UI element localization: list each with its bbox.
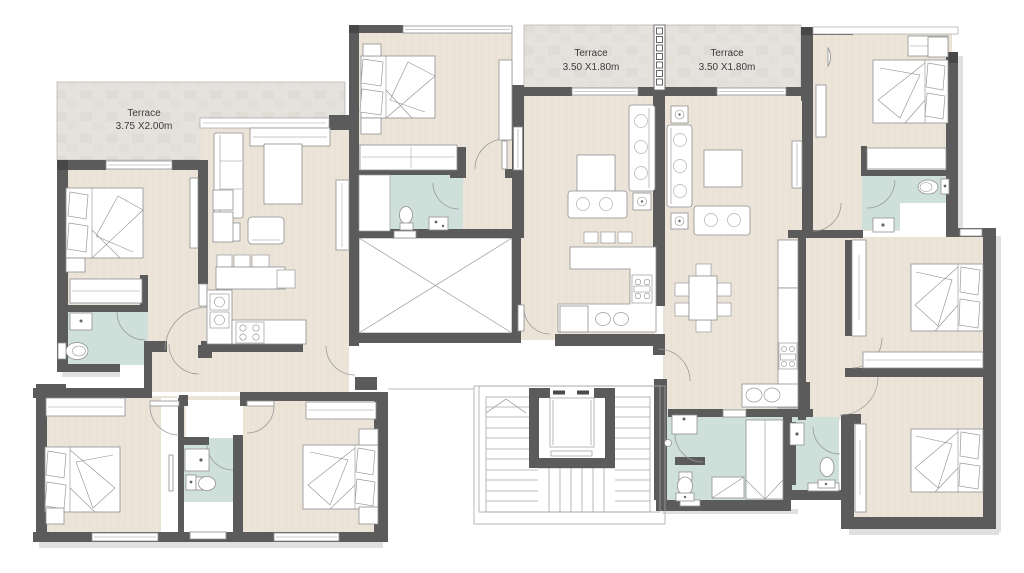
svg-text:3.50 X1.80m: 3.50 X1.80m bbox=[699, 62, 756, 73]
svg-text:3.50 X1.80m: 3.50 X1.80m bbox=[563, 62, 620, 73]
svg-text:Terrace: Terrace bbox=[574, 48, 608, 59]
svg-text:Terrace: Terrace bbox=[710, 48, 744, 59]
svg-text:3.75 X2.00m: 3.75 X2.00m bbox=[116, 121, 173, 132]
svg-text:Terrace: Terrace bbox=[127, 108, 161, 119]
